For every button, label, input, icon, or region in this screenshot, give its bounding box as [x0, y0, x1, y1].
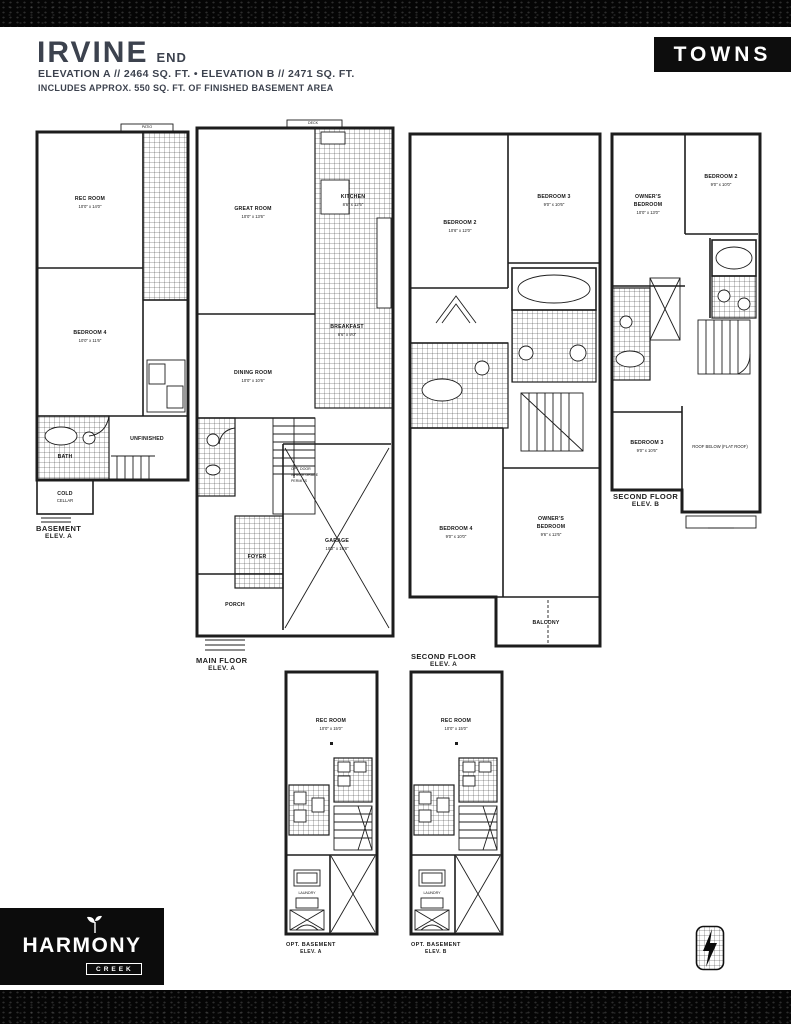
brand-subname: CREEK [86, 963, 142, 975]
svg-text:10'0" x 15'0": 10'0" x 15'0" [445, 726, 468, 731]
room-label: OWNER'S [538, 516, 564, 522]
room-label: BEDROOM 4 [73, 330, 106, 336]
plan-caption-opt-basement-b: OPT. BASEMENT ELEV. B [411, 942, 461, 955]
svg-text:WHERE GRADE: WHERE GRADE [291, 473, 319, 477]
svg-text:9'0" x 10'6": 9'0" x 10'6" [544, 202, 565, 207]
floor-plan-main: DECK KITCHEN 8'6" x 12'6" BREAKFAST 8'6"… [195, 118, 395, 654]
room-label: REC ROOM [75, 196, 105, 202]
room-label: BATH [58, 454, 73, 460]
room-label: BEDROOM 4 [439, 526, 472, 532]
svg-text:10'0" x 14'0": 10'0" x 14'0" [79, 204, 102, 209]
outdoor-label: PATIO [142, 125, 152, 129]
elevation-stats: ELEVATION A // 2464 SQ. FT. • ELEVATION … [38, 68, 355, 80]
svg-text:PERMITS: PERMITS [291, 479, 308, 483]
room-label: DINING ROOM [234, 370, 272, 376]
room-label: FOYER [248, 554, 267, 560]
sprout-icon [84, 914, 106, 934]
brand-name: HARMONY [0, 934, 164, 958]
room-label: BEDROOM 3 [537, 194, 570, 200]
floor-plan-second-a: BEDROOM 2 10'6" x 12'0" BEDROOM 3 9'0" x… [408, 128, 602, 650]
svg-text:9'0" x 10'0": 9'0" x 10'0" [711, 182, 732, 187]
top-border-bar [0, 0, 791, 27]
room-label: REC ROOM [316, 718, 346, 724]
svg-text:9'0" x 10'6": 9'0" x 10'6" [637, 448, 658, 453]
room-label: BREAKFAST [330, 324, 364, 330]
harmony-creek-logo: HARMONY CREEK [0, 908, 164, 985]
outdoor-label: DECK [308, 121, 319, 125]
floor-plan-opt-basement-b: REC ROOM 10'0" x 15'0" LAUNDRY [409, 670, 504, 938]
svg-text:BEDROOM: BEDROOM [537, 524, 566, 530]
room-label: LAUNDRY [298, 891, 316, 895]
svg-text:10'2" x 19'8": 10'2" x 19'8" [326, 546, 349, 551]
room-label: PORCH [225, 602, 245, 608]
floor-plan-opt-basement-a: REC ROOM 10'0" x 15'0" LAUNDRY [284, 670, 379, 938]
svg-text:BEDROOM: BEDROOM [634, 202, 663, 208]
room-label: REC ROOM [441, 718, 471, 724]
svg-text:10'0" x 10'6": 10'0" x 10'6" [242, 378, 265, 383]
room-label: BEDROOM 2 [443, 220, 476, 226]
room-label: KITCHEN [341, 194, 366, 200]
room-label: BALCONY [532, 620, 559, 626]
plan-caption-basement: BASEMENT ELEV. A [36, 524, 81, 542]
svg-text:10'0" x 15'0": 10'0" x 15'0" [320, 726, 343, 731]
page-title: IRVINEEND [37, 36, 187, 70]
svg-text:9'0" x 10'0": 9'0" x 10'0" [446, 534, 467, 539]
room-label: OWNER'S [635, 194, 661, 200]
floorplan-sheet: IRVINEEND ELEVATION A // 2464 SQ. FT. • … [0, 0, 791, 1024]
basement-note: INCLUDES APPROX. 550 SQ. FT. OF FINISHED… [38, 83, 334, 93]
room-label: LAUNDRY [423, 891, 441, 895]
svg-text:8'6" x 9'0": 8'6" x 9'0" [338, 332, 357, 337]
room-label: GREAT ROOM [234, 206, 271, 212]
energy-bolt-icon [695, 925, 725, 971]
floor-plan-basement: PATIO REC ROOM 10'0" x 14'0" BEDROOM 4 1… [35, 122, 190, 526]
room-label: GARAGE [325, 538, 349, 544]
svg-text:10'0" x 13'6": 10'0" x 13'6" [242, 214, 265, 219]
svg-text:10'0" x 11'6": 10'0" x 11'6" [79, 338, 102, 343]
plan-caption-opt-basement-a: OPT. BASEMENT ELEV. A [286, 942, 336, 955]
room-label: ROOF BELOW (FLAT ROOF) [692, 444, 748, 449]
svg-text:8'6" x 12'6": 8'6" x 12'6" [343, 202, 364, 207]
room-label: BEDROOM 2 [704, 174, 737, 180]
room-label: UNFINISHED [130, 436, 164, 442]
plan-caption-main: MAIN FLOOR ELEV. A [196, 656, 248, 674]
towns-badge-label: TOWNS [674, 43, 772, 67]
garage-note: OPT. DOOR [291, 467, 311, 471]
plan-caption-second-b: SECOND FLOOR ELEV. B [613, 492, 678, 510]
plan-caption-second-a: SECOND FLOOR ELEV. A [411, 652, 476, 670]
towns-badge: TOWNS [654, 37, 791, 72]
svg-text:CELLAR: CELLAR [57, 498, 73, 503]
unit-type-label: END [156, 50, 186, 65]
svg-text:10'6" x 12'0": 10'6" x 12'0" [449, 228, 472, 233]
plan-name: IRVINE [37, 36, 148, 69]
bottom-border-bar [0, 990, 791, 1024]
svg-text:9'6" x 12'6": 9'6" x 12'6" [541, 532, 562, 537]
room-label: BEDROOM 3 [630, 440, 663, 446]
svg-text:10'0" x 13'0": 10'0" x 13'0" [637, 210, 660, 215]
room-label: COLD [57, 491, 73, 497]
